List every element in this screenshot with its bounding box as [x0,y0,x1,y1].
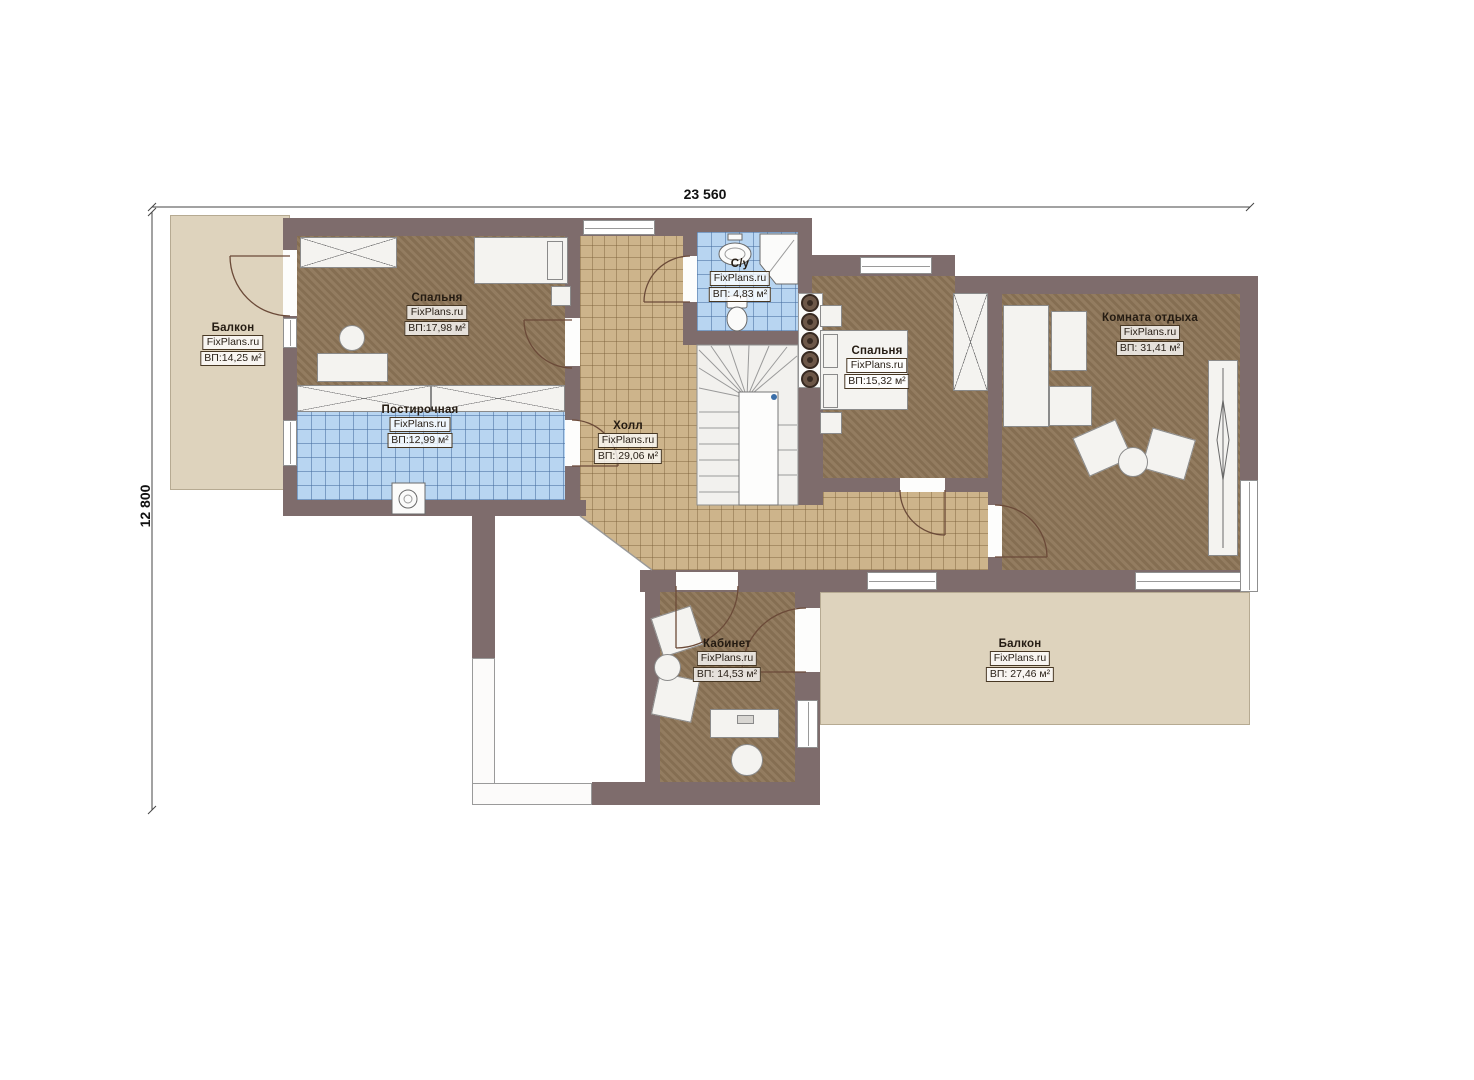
room-area: ВП: 29,06 м² [594,449,662,464]
lounge-side-table [1051,311,1087,371]
room-name: Балкон [200,322,265,334]
laptop [737,715,754,724]
watermark: FixPlans.ru [203,335,264,350]
window-lounge-bottom [1135,572,1250,590]
dimension-height-label: 12 800 [137,466,153,546]
wall-void-left [472,508,495,658]
railing-horizontal [472,783,592,805]
nightstand-bedroom-2-a [820,305,842,327]
nightstand-bedroom-2-b [820,412,842,434]
window-seat [1208,360,1238,556]
room-name: С/у [709,258,771,270]
door-opening-office [676,572,738,590]
pillow-bedroom-2-a [823,334,838,368]
room-name: Комната отдыха [1102,312,1198,324]
door-opening-laundry [565,420,580,466]
staircase [697,345,798,505]
door-opening-balcony-left [283,250,297,316]
room-name: Балкон [986,638,1054,650]
room-name: Кабинет [693,638,761,650]
wall-bathroom-right [798,218,812,293]
watermark: FixPlans.ru [598,433,659,448]
door-opening-office-balcony [795,608,820,672]
wall-right-lounge [1240,294,1258,480]
room-label-hall: Холл FixPlans.ru ВП: 29,06 м² [594,420,662,464]
room-name: Постирочная [382,404,459,416]
room-label-balcony-left: Балкон FixPlans.ru ВП:14,25 м² [200,322,265,366]
window-lounge-corner [1240,480,1258,592]
room-area: ВП:17,98 м² [404,321,469,336]
window-bedroom-1 [283,318,297,348]
pillow-bedroom-1 [547,241,563,280]
floor-plan-canvas: 23 560 12 800 Балкон FixPlans.ru ВП:14,2… [0,0,1474,1080]
room-label-balcony-bottom: Балкон FixPlans.ru ВП: 27,46 м² [986,638,1054,682]
room-area: ВП:14,25 м² [200,351,265,366]
room-label-bedroom-1: Спальня FixPlans.ru ВП:17,98 м² [404,292,469,336]
room-label-laundry: Постирочная FixPlans.ru ВП:12,99 м² [382,404,459,448]
lounge-round-table [1118,447,1148,477]
watermark: FixPlans.ru [390,417,451,432]
wardrobe-bedroom-2 [953,293,988,391]
hall-floor-main [580,236,697,570]
room-area: ВП: 31,41 м² [1116,341,1184,356]
window-laundry [283,420,297,466]
dimension-width-label: 23 560 [655,186,755,202]
sofa-back [1003,305,1049,427]
door-opening-bedroom-1 [565,318,580,366]
room-area: ВП: 14,53 м² [693,667,761,682]
vanity-table [317,353,388,382]
window-bedroom-2 [860,257,932,274]
hall-floor-under-stairs [697,505,823,570]
watermark: FixPlans.ru [990,651,1051,666]
door-opening-lounge [988,505,1002,557]
room-area: ВП:15,32 м² [844,374,909,389]
room-name: Спальня [844,345,909,357]
vanity-stool [339,325,365,351]
hall-floor-corridor [823,492,988,570]
watermark: FixPlans.ru [847,358,908,373]
wall-bathroom-bottom [683,331,798,345]
watermark: FixPlans.ru [697,651,758,666]
door-opening-bathroom [683,256,697,302]
window-hall-top [583,220,655,235]
window-office [797,700,818,748]
watermark: FixPlans.ru [1120,325,1181,340]
room-label-bedroom-2: Спальня FixPlans.ru ВП:15,32 м² [844,345,909,389]
office-round-table [654,654,681,681]
pillow-bedroom-2-b [823,374,838,408]
sofa-seat [1049,386,1092,426]
room-label-bathroom: С/у FixPlans.ru ВП: 4,83 м² [709,258,771,302]
window-corridor-bottom [867,572,937,590]
room-name: Спальня [404,292,469,304]
wall-bottom-left-block [283,500,586,516]
room-area: ВП: 4,83 м² [709,287,771,302]
door-opening-bedroom-2 [900,478,945,492]
room-label-office: Кабинет FixPlans.ru ВП: 14,53 м² [693,638,761,682]
nightstand-bedroom-1 [551,286,571,306]
watermark: FixPlans.ru [710,271,771,286]
wall-office-bottom [592,782,820,805]
room-area: ВП:12,99 м² [387,433,452,448]
office-chair [731,744,763,776]
wardrobe-bedroom-1 [300,237,397,268]
room-label-lounge: Комната отдыха FixPlans.ru ВП: 31,41 м² [1102,312,1198,356]
room-area: ВП: 27,46 м² [986,667,1054,682]
room-name: Холл [594,420,662,432]
wall-top-bathroom [697,218,812,232]
watermark: FixPlans.ru [407,305,468,320]
